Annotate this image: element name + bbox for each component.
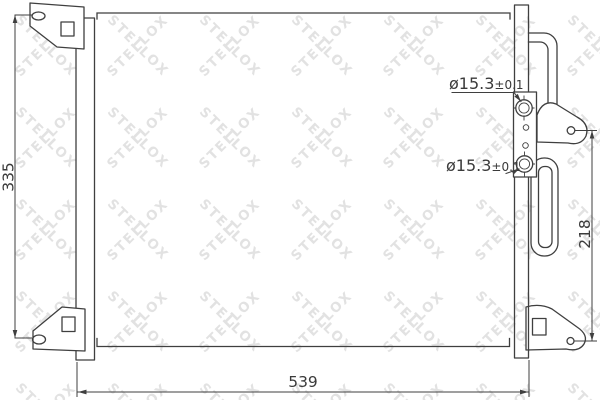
fitting-top-tolerance: ±0.1 (494, 78, 523, 92)
dim-218-label: 218 (576, 219, 594, 249)
technical-drawing-page: STELLOX STELLOX (0, 0, 600, 400)
dim-335-label: 335 (0, 162, 18, 192)
fitting-bottom-diameter: ø15.3 (446, 156, 491, 175)
fitting-top-diameter: ø15.3 (449, 74, 494, 93)
dim-539-label: 539 (288, 373, 318, 391)
condenser-drawing: STELLOX STELLOX (0, 0, 600, 400)
